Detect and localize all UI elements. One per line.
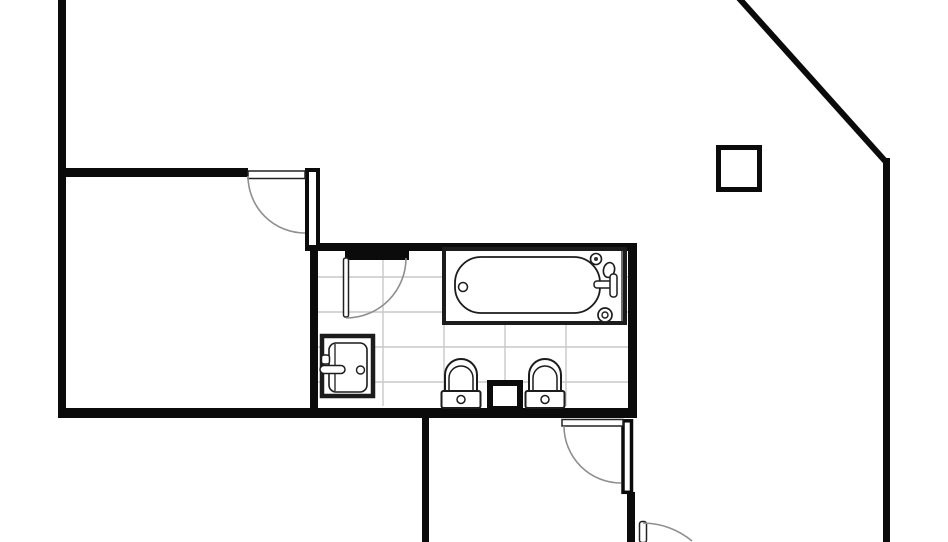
wall-stub-hollow-upper (307, 170, 318, 247)
toilet-right (526, 359, 565, 408)
floor-plan-canvas (0, 0, 948, 542)
bathtub-basin (455, 257, 600, 313)
recessed-box-between-toilets (490, 383, 520, 409)
overflow-valve-icon (598, 308, 612, 322)
door-swing-arc-lower-room (564, 426, 621, 483)
door-swing-arc-upper-left (248, 176, 305, 233)
toilet-flush-icon (541, 396, 549, 404)
room-divider-wall-upper (58, 168, 248, 177)
door-swing-arc-bottom-right (643, 523, 692, 541)
lower-room-right-wall (627, 492, 635, 542)
door-leaf-upper-left (248, 171, 305, 179)
floor-plan-drawing (0, 0, 948, 542)
faucet-handle-icon (610, 274, 617, 297)
door-leaf-bottom-right (640, 522, 647, 542)
bathroom-door-header (345, 249, 409, 260)
door-leaf-lower-room (562, 420, 623, 427)
bathroom-left-wall (310, 243, 318, 417)
toilet-left (442, 359, 481, 408)
door-leaf-bathroom (344, 258, 349, 317)
door-swing-arc-bathroom (346, 258, 406, 318)
exterior-wall-left (58, 0, 66, 418)
exterior-wall-right (883, 158, 890, 542)
sink-drain-icon (357, 366, 365, 374)
faucet-valve-dot (594, 257, 598, 261)
bathroom-right-wall (628, 243, 637, 417)
sink-faucet-knob-icon (322, 355, 330, 364)
square-column (719, 148, 760, 190)
bottom-wall (58, 408, 637, 418)
vanity-sink (320, 336, 373, 396)
sink-faucet-spout-icon (320, 366, 345, 374)
wall-stub-hollow-lower (623, 421, 632, 493)
exterior-wall-diagonal (737, 0, 886, 162)
bathtub-drain-icon (459, 283, 468, 292)
lower-room-left-wall (422, 418, 429, 542)
toilet-flush-icon (457, 396, 465, 404)
bathtub-with-faucet (444, 249, 625, 323)
